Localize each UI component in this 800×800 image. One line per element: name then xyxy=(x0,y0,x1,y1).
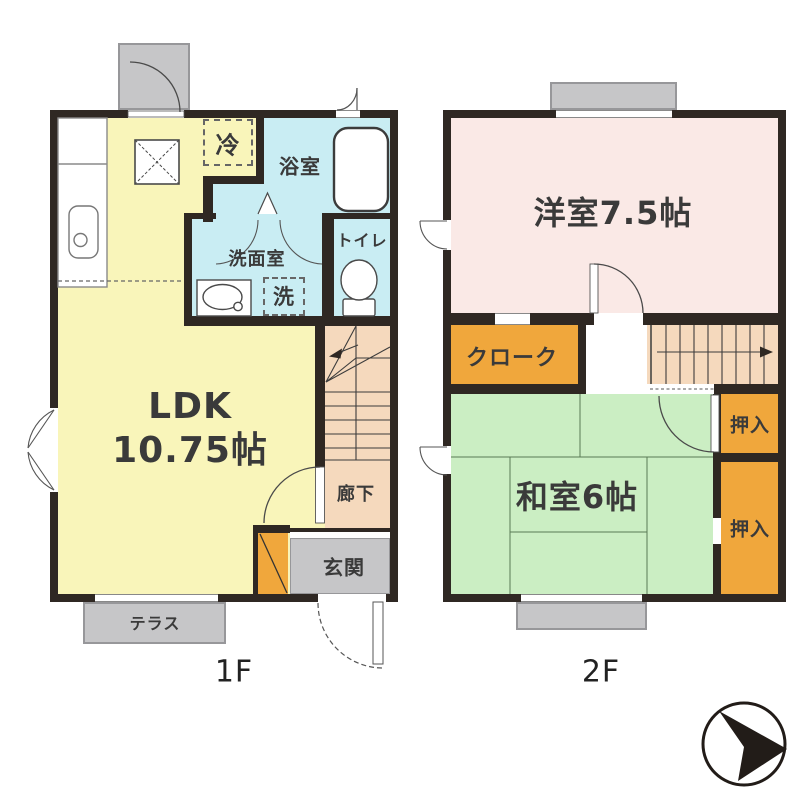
label-entrance: 玄関 xyxy=(323,552,365,581)
label-floor-1f: 1F xyxy=(215,655,253,690)
wall-washroom-toilet xyxy=(322,219,334,316)
label-floor-2f: 2F xyxy=(582,655,620,690)
balcony-top xyxy=(550,82,677,110)
label-washroom: 洗面室 xyxy=(229,245,286,271)
cloak-opening xyxy=(495,313,530,325)
label-japanese-room: 和室6帖 xyxy=(516,472,638,518)
japanese-side-window-opening xyxy=(443,446,451,474)
closet-slide-opening xyxy=(713,518,721,544)
label-closet-upper: 押入 xyxy=(730,411,770,438)
entrance-door xyxy=(318,602,383,668)
wall-washroom-top-a xyxy=(184,213,216,219)
porch-door-opening xyxy=(128,110,184,118)
label-ldk-line2: 10.75帖 xyxy=(112,429,268,473)
label-bathroom: 浴室 xyxy=(279,151,321,180)
wall-entrance-top xyxy=(253,525,290,533)
entrance-step-line xyxy=(290,528,390,532)
shoe-cabinet xyxy=(258,533,288,594)
label-toilet: トイレ xyxy=(336,227,387,251)
bathroom-window-swing xyxy=(337,88,357,110)
wall-2f-left xyxy=(443,110,451,602)
bathroom-window xyxy=(336,110,360,118)
under-stairs-opening xyxy=(650,384,714,394)
landing-passage-opening xyxy=(586,384,650,394)
wall-1f-right xyxy=(390,110,398,602)
wall-cabinet-left xyxy=(253,533,258,594)
western-side-window-opening xyxy=(443,220,451,250)
floor-plan-canvas: 冷 浴室 洗面室 洗 トイレ LDK 10.75帖 廊下 玄関 テラス 1F 洋… xyxy=(0,0,800,800)
landing-2f xyxy=(586,325,647,384)
wall-washroom-left xyxy=(184,213,192,326)
label-ldk: LDK 10.75帖 xyxy=(112,385,268,473)
label-hallway: 廊下 xyxy=(337,480,375,506)
label-terrace: テラス xyxy=(130,610,181,634)
balcony-bottom xyxy=(516,602,647,630)
ldk-side-window-opening xyxy=(50,408,58,492)
wall-below-washroom xyxy=(184,316,390,326)
wall-ldk-hallway xyxy=(315,326,325,468)
stairs-2f-floor xyxy=(647,325,778,384)
wall-closet-left xyxy=(713,394,721,594)
label-ldk-line1: LDK xyxy=(112,385,268,429)
entrance-door-opening xyxy=(318,594,386,602)
western-door-opening xyxy=(594,313,643,325)
wall-cloak-right xyxy=(578,325,586,384)
wall-ldk-bath xyxy=(256,118,264,184)
label-closet-lower: 押入 xyxy=(730,515,770,542)
wall-closet-divider xyxy=(721,453,778,462)
terrace-window xyxy=(95,594,218,602)
balcony-bottom-window xyxy=(521,594,642,602)
compass-icon xyxy=(703,703,787,785)
wall-1f-left xyxy=(50,110,58,602)
label-western-room: 洋室7.5帖 xyxy=(534,188,693,234)
balcony-top-window xyxy=(556,110,672,118)
wall-2f-right xyxy=(778,110,786,602)
label-washer: 洗 xyxy=(273,281,295,311)
label-cloak: クローク xyxy=(466,340,558,372)
label-fridge: 冷 xyxy=(216,126,241,161)
porch xyxy=(118,43,190,110)
